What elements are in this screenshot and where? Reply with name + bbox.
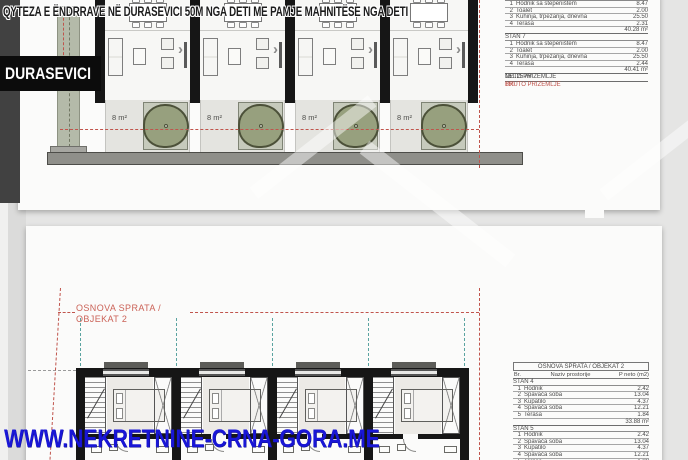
window-icon (295, 369, 341, 376)
interior-wall-line (295, 30, 380, 31)
wall (468, 0, 478, 103)
col-room-name: Naziv prostorije (524, 371, 617, 378)
pillow-icon (308, 408, 315, 419)
tv-icon (279, 42, 282, 68)
chairs (390, 22, 468, 28)
tv-icon (462, 42, 465, 68)
pillow-icon (404, 408, 411, 419)
col-number: Br. (513, 371, 524, 378)
fixture-icon (379, 446, 390, 453)
terrace: 8 m² (200, 100, 285, 152)
table-row: 3Kuhinja, trpezarija, dnevna25.50 (505, 54, 648, 61)
chairs (295, 22, 380, 28)
axis-dashed-line (176, 318, 177, 371)
caption-line2: OBJEKAT 2 (76, 314, 127, 324)
window-icon (199, 369, 245, 376)
table-row: 2Toalet2.00 (505, 48, 648, 55)
terrace-area-label: 8 m² (207, 113, 222, 122)
armchair-icon (161, 38, 174, 50)
stan6-rows: 1Hodnik sa stepeništem8.472Toalet2.003Ku… (505, 1, 648, 27)
chairs (200, 22, 285, 28)
table-row: 2Toalet2.00 (505, 8, 648, 15)
pillow-icon (212, 393, 219, 404)
stan4-label: STAN 4 (513, 379, 649, 386)
boundary-dashed-line (479, 0, 480, 168)
closet-shaft-icon (442, 377, 460, 434)
window-icon (103, 369, 149, 376)
armchair-icon (351, 57, 364, 69)
headboard-line (221, 390, 222, 421)
table-row: 1Hodnik sa stepeništem8.47 (505, 41, 648, 48)
bruto-value: 190 (505, 82, 515, 89)
caption-line1: OSNOVA SPRATA / (76, 303, 161, 313)
armchair-icon (161, 57, 174, 69)
tree-icon (143, 104, 189, 148)
table-row: 1Hodnik2.42 (513, 432, 649, 439)
table-header: Br. Naziv prostorije P neto (m2) (513, 371, 649, 379)
sofa-icon (393, 38, 408, 76)
coffee-table-icon (228, 48, 241, 65)
stan4-total: 33.88 m² (513, 419, 649, 426)
reference-dashed-line (28, 370, 76, 371)
planter (238, 102, 283, 150)
neto-row: NETO PRIZEMLJE 161.25 m² (505, 74, 648, 81)
headboard-line (413, 390, 414, 421)
chairs (105, 22, 190, 28)
bruto-row: BRUTO PRIZEMLJE 190 (505, 82, 648, 89)
axis-dashed-line (272, 318, 273, 371)
axis-dashed-line (368, 318, 369, 371)
door-swing-icon: › (456, 42, 461, 57)
sheet-corner-tab (585, 208, 604, 218)
tree-trunk (442, 124, 446, 128)
table-row: 1Hodnik2.42 (513, 386, 649, 393)
fixture-icon (444, 446, 457, 453)
wall (460, 368, 469, 460)
terrace-area-label: 8 m² (302, 113, 317, 122)
stan5-rows: 1Hodnik2.422Spavaća soba13.043Kupatilo4.… (513, 432, 649, 460)
table-row: 3Kupatilo4.37 (513, 445, 649, 452)
table-title: OSNOVA SPRATA / OBJEKAT 2 (513, 362, 649, 371)
location-label: DURASEVICI (5, 56, 91, 91)
tree-trunk (164, 124, 168, 128)
fixture-icon (397, 444, 406, 451)
table-row: 3Kuhinja, trpezarija, dnevna25.50 (505, 14, 648, 21)
coffee-table-icon (323, 48, 336, 65)
dining-table-icon (410, 3, 448, 22)
terrace-area-label: 8 m² (397, 113, 412, 122)
stan5-label: STAN 5 (513, 426, 649, 433)
window-icon (391, 369, 437, 376)
table-row: 4Spavaća soba12.21 (513, 452, 649, 459)
site-watermark: WWW.NEKRETNINE-CRNA-GORA.ME (4, 425, 380, 454)
coffee-table-icon (133, 48, 146, 65)
table-row: 2Spavaća soba13.04 (513, 392, 649, 399)
tree-icon (421, 104, 467, 148)
table-row: 2Spavaća soba13.04 (513, 439, 649, 446)
door-swing-icon: › (368, 42, 373, 57)
caption-dashed-line (190, 312, 479, 313)
caption-dashed-line (58, 312, 75, 313)
interior-wall-line (390, 30, 468, 31)
left-dark-bar (0, 0, 20, 203)
axis-dashed-line (80, 318, 81, 371)
door-swing-icon: › (178, 42, 183, 57)
table-row: 4Terasa2.31 (505, 21, 648, 28)
terrace: 8 m² (105, 100, 190, 152)
terrace: 8 m² (390, 100, 468, 152)
boundary-dashed-line (60, 129, 479, 130)
armchair-icon (256, 38, 269, 50)
coffee-table-icon (418, 48, 431, 65)
floor-plan-caption: OSNOVA SPRATA / OBJEKAT 2 (76, 303, 161, 325)
sofa-icon (298, 38, 313, 76)
bedroom (395, 377, 441, 434)
door-swing-icon: › (273, 42, 278, 57)
table-row: 5Terasa1.84 (513, 412, 649, 419)
tree-trunk (354, 124, 358, 128)
listing-title-caption: QYTEZA E ËNDRRAVE NË DURASEVICI 50M NGA … (3, 4, 408, 19)
pillow-icon (308, 393, 315, 404)
armchair-icon (256, 57, 269, 69)
table-row: 4Terasa2.44 (505, 61, 648, 68)
stan7-rows: 1Hodnik sa stepeništem8.472Toalet2.003Ku… (505, 41, 648, 67)
tree-trunk (259, 124, 263, 128)
armchair-icon (439, 57, 452, 69)
tree-icon (238, 104, 284, 148)
table-row: 1Hodnik sa stepeništem8.47 (505, 1, 648, 8)
sofa-icon (203, 38, 218, 76)
interior-wall-line (105, 30, 190, 31)
stan7-label: STAN 7 (505, 34, 648, 41)
neto-value: 161.25 m² (505, 74, 532, 81)
pillow-icon (212, 408, 219, 419)
terrace-area-label: 8 m² (112, 113, 127, 122)
stan4-rows: 1Hodnik2.422Spavaća soba13.043Kupatilo4.… (513, 386, 649, 419)
planter (143, 102, 188, 150)
pillow-icon (404, 393, 411, 404)
ground-floor-area-table: 1Hodnik sa stepeništem8.472Toalet2.003Ku… (505, 0, 648, 89)
pillow-icon (116, 393, 123, 404)
tv-icon (184, 42, 187, 68)
col-net-area: P neto (m2) (617, 371, 649, 378)
planter (421, 102, 466, 150)
table-row: 3Kupatilo4.37 (513, 399, 649, 406)
headboard-line (317, 390, 318, 421)
pillow-icon (116, 408, 123, 419)
armchair-icon (351, 38, 364, 50)
table-row: 4Spavaća soba12.21 (513, 405, 649, 412)
left-edge-shadow (8, 203, 26, 460)
axis-dashed-line (464, 318, 465, 371)
left-edge-strip (0, 203, 8, 460)
interior-wall-line (200, 30, 285, 31)
armchair-icon (439, 38, 452, 50)
bathroom-wall (418, 434, 460, 439)
tv-icon (374, 42, 377, 68)
screenshot-root: › 8 m² › 8 m² (0, 0, 688, 460)
upper-floor-area-table: OSNOVA SPRATA / OBJEKAT 2 Br. Naziv pros… (513, 362, 649, 460)
headboard-line (125, 390, 126, 421)
upper-floor-unit (373, 377, 460, 460)
sofa-icon (108, 38, 123, 76)
stan6-total: 40.28 m² (505, 27, 648, 34)
stan7-total: 40.41 m² (505, 67, 648, 74)
boundary-dashed-line (479, 288, 480, 460)
location-label-box: DURASEVICI (0, 56, 101, 91)
